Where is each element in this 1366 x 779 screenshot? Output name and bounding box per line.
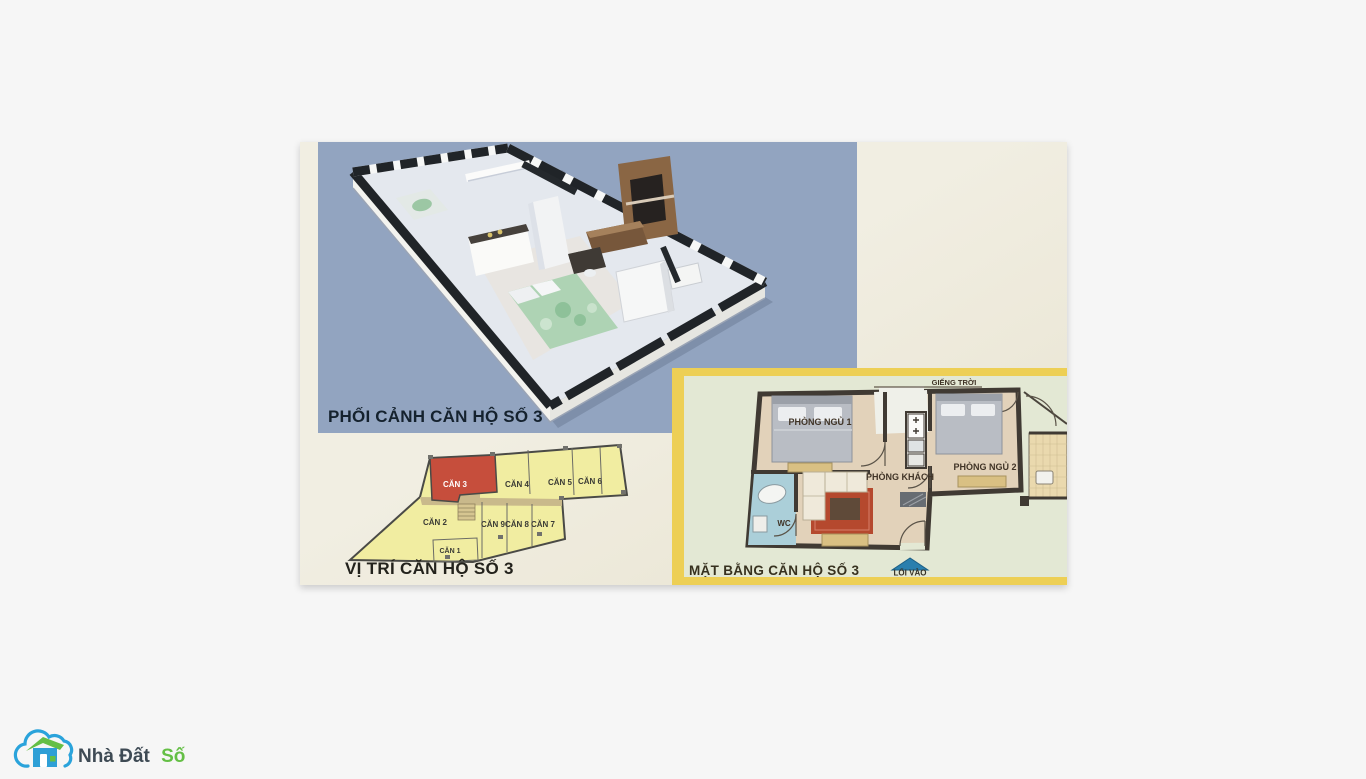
site-plan-label: VỊ TRÍ CĂN HỘ SỐ 3 — [345, 559, 514, 579]
unit-label-6: CĂN 6 — [578, 477, 603, 486]
site-plan: CĂN 3 CĂN 4 CĂN 5 CĂN 6 CĂN 2 CĂN 9 CĂN … — [340, 442, 640, 572]
floor-plan: PHÒNG NGỦ 1 PHÒNG KHÁCH PHÒNG NGỦ 2 WC G… — [684, 376, 1067, 577]
perspective-label: PHỐI CẢNH CĂN HỘ SỐ 3 — [328, 407, 543, 427]
unit-label-5: CĂN 5 — [548, 478, 573, 487]
cloud-house-icon: Nhà Đất Số — [12, 728, 242, 774]
unit-label-9: CĂN 9 — [481, 520, 506, 529]
room-label-wc: WC — [777, 519, 791, 528]
unit-label-3: CĂN 3 — [443, 480, 468, 489]
unit-label-8: CĂN 8 — [505, 520, 530, 529]
room-label-bedroom2: PHÒNG NGỦ 2 — [953, 461, 1016, 472]
floor-plan-panel: PHÒNG NGỦ 1 PHÒNG KHÁCH PHÒNG NGỦ 2 WC G… — [672, 368, 1067, 585]
brand-logo: Nhà Đất Số — [12, 728, 242, 779]
entrance-label: LỐI VÀO — [894, 568, 927, 578]
brand-name-primary: Nhà Đất — [78, 746, 150, 767]
room-label-living: PHÒNG KHÁCH — [866, 471, 934, 482]
unit-label-4: CĂN 4 — [505, 480, 530, 489]
floor-plan-label: MẶT BẰNG CĂN HỘ SỐ 3 — [689, 563, 859, 577]
brochure-photo: PHỐI CẢNH CĂN HỘ SỐ 3 CĂN 3 CĂN 4 CĂN 5 — [300, 142, 1067, 585]
room-label-bedroom1: PHÒNG NGỦ 1 — [788, 416, 851, 427]
svg-text:Nhà Đất Số: Nhà Đất Số — [78, 746, 186, 767]
brand-name-accent: Số — [161, 746, 186, 767]
unit-label-7: CĂN 7 — [531, 520, 556, 529]
unit-label-2: CĂN 2 — [423, 518, 448, 527]
unit-label-1: CĂN 1 — [439, 546, 460, 555]
skylight-label: GIẾNG TRỜI — [932, 377, 977, 387]
